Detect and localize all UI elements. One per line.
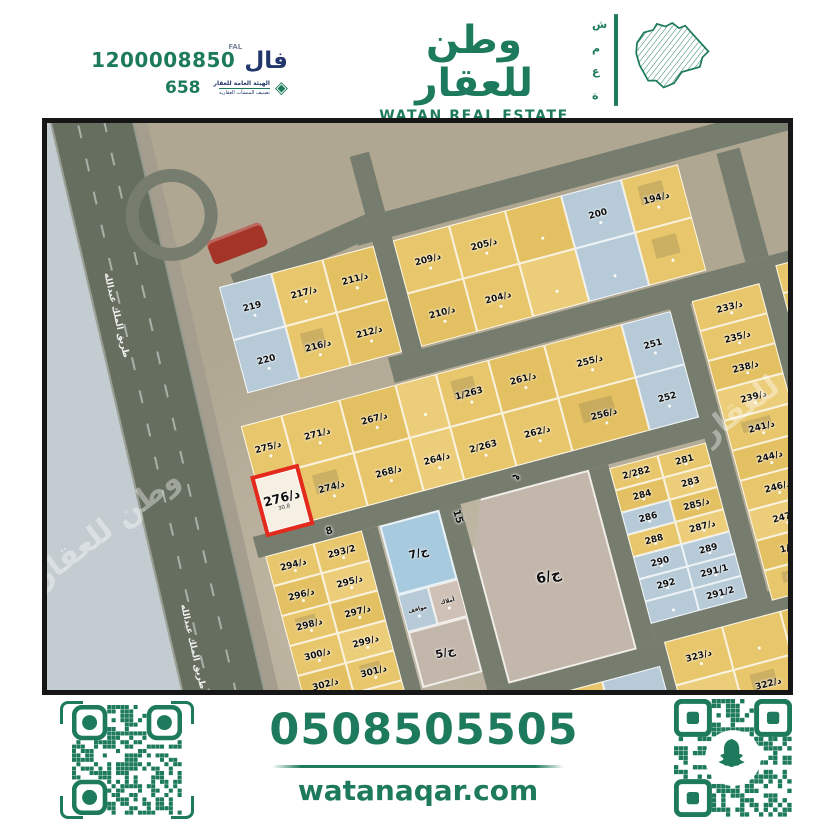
divider-line bbox=[272, 765, 564, 768]
parcel-dot bbox=[598, 221, 602, 225]
parcel-dot bbox=[540, 236, 544, 240]
plot-label: د/271 bbox=[303, 426, 331, 443]
road bbox=[716, 148, 768, 262]
parcel-dot bbox=[499, 304, 503, 308]
plot-label: د/204 bbox=[484, 289, 512, 306]
plot-label: 2/248 bbox=[787, 568, 793, 585]
parcel-dot bbox=[269, 454, 273, 458]
plot-label: د/287 bbox=[688, 518, 716, 535]
side-brand-letters: شمعة bbox=[592, 12, 607, 108]
map-frame: طريق الملك عبدالله طريق الملك عبدالله ج/… bbox=[42, 118, 793, 695]
plot-label: د/267 bbox=[360, 411, 388, 428]
parcel-dot bbox=[654, 351, 658, 355]
contact-block: 0508505505 watanaqar.com bbox=[262, 705, 574, 807]
plot-label: د/256 bbox=[590, 406, 618, 423]
plot-label: د/216 bbox=[304, 338, 332, 355]
plot-label: د/209 bbox=[414, 251, 442, 268]
plot-label: 292 bbox=[656, 577, 677, 592]
parcel-dot bbox=[332, 494, 336, 498]
lot-label: ج/7 bbox=[407, 544, 429, 562]
parcel-dot bbox=[484, 251, 488, 255]
parcel-dot bbox=[375, 426, 379, 430]
parcel-dot bbox=[671, 609, 675, 613]
plot-label: 251 bbox=[643, 337, 664, 352]
authority-name: الهيئة العامة للعقار bbox=[214, 80, 270, 87]
plot-label: د/268 bbox=[374, 464, 402, 481]
plot-label: د/262 bbox=[523, 424, 551, 441]
website-link[interactable]: watanaqar.com bbox=[262, 774, 574, 807]
qr-code-left[interactable] bbox=[54, 701, 200, 819]
plot-label: 286 bbox=[638, 510, 659, 525]
plot-label: 2/263 bbox=[468, 438, 498, 455]
footer: 0508505505 watanaqar.com bbox=[0, 695, 835, 825]
logo-divider-bar bbox=[614, 14, 618, 106]
parcel-dot bbox=[418, 614, 422, 618]
parcel-dot bbox=[613, 274, 617, 278]
plot-label: د/274 bbox=[317, 479, 345, 496]
plot-cell: د/174 bbox=[790, 302, 793, 349]
lot-label: ج/5 bbox=[434, 643, 456, 661]
parcel-dot bbox=[657, 205, 661, 209]
brand-logo: وطن للعقار WATAN REAL ESTATE bbox=[368, 20, 580, 124]
plot-label: 219 bbox=[242, 299, 263, 314]
plot-cell: د/316 bbox=[792, 639, 793, 695]
plot-label: د/285 bbox=[682, 496, 710, 513]
parcel-dot bbox=[484, 453, 488, 457]
header: 1200008850 FALفال 658 الهيئة العامة للعق… bbox=[0, 0, 835, 118]
plot-label: د/322 bbox=[754, 676, 782, 693]
brand-letter: ة bbox=[592, 89, 607, 102]
plot-label: 1/248 bbox=[779, 538, 793, 555]
saudi-map-icon bbox=[625, 12, 711, 108]
saudi-map-logo: شمعة bbox=[592, 12, 711, 108]
plot-label: 283 bbox=[680, 475, 701, 490]
plot-label: د/210 bbox=[428, 304, 456, 321]
authority-diamond-icon: ◈ bbox=[275, 80, 288, 97]
parcel-dot bbox=[604, 421, 608, 425]
plot-label: 220 bbox=[256, 353, 277, 368]
plot-label: 284 bbox=[632, 488, 653, 503]
plot-label: 252 bbox=[657, 390, 678, 405]
phone-number[interactable]: 0508505505 bbox=[269, 705, 578, 755]
plot-label: أملاك bbox=[440, 597, 456, 607]
plot-label: 291/1 bbox=[699, 563, 729, 580]
plot-label: د/212 bbox=[355, 324, 383, 341]
parcel-dot bbox=[769, 689, 773, 693]
parcel-dot bbox=[443, 319, 447, 323]
classification-number: 658 bbox=[165, 78, 201, 98]
plot-label: د/261 bbox=[509, 371, 537, 388]
plot-label: د/205 bbox=[470, 236, 498, 253]
plot-label: 200 bbox=[588, 207, 609, 222]
parcel-dot bbox=[469, 400, 473, 404]
parcel-dot bbox=[699, 661, 703, 665]
parcel-dot bbox=[319, 353, 323, 357]
parcel-dot bbox=[267, 367, 271, 371]
plot-label: 1/263 bbox=[454, 385, 484, 402]
parcel-dot bbox=[318, 441, 322, 445]
parcel-dot bbox=[668, 404, 672, 408]
lot-label: ج/6 bbox=[535, 566, 563, 588]
fal-logo: FALفال bbox=[244, 46, 288, 73]
parcel-map: طريق الملك عبدالله طريق الملك عبدالله ج/… bbox=[42, 118, 793, 695]
plot-label: د/255 bbox=[576, 353, 604, 370]
parcel-dot bbox=[389, 479, 393, 483]
plot-label: د/264 bbox=[423, 451, 451, 468]
parcel-dot bbox=[304, 300, 308, 304]
parcel-dot bbox=[757, 646, 761, 650]
parcel-dot bbox=[590, 368, 594, 372]
parcel-dot bbox=[437, 466, 441, 470]
brand-letter: ع bbox=[592, 65, 607, 78]
parcel-dot bbox=[524, 386, 528, 390]
parcel-dot bbox=[370, 339, 374, 343]
flyer-page: 1200008850 FALفال 658 الهيئة العامة للعق… bbox=[0, 0, 835, 825]
brand-letter: ش bbox=[592, 18, 607, 31]
parcel-dot bbox=[428, 266, 432, 270]
plot-label: د/211 bbox=[341, 271, 369, 288]
license-block: 1200008850 FALفال 658 الهيئة العامة للعق… bbox=[88, 46, 288, 98]
plot-label: د/323 bbox=[685, 648, 713, 665]
plot-label: د/217 bbox=[290, 285, 318, 302]
plot-label: 281 bbox=[674, 453, 695, 468]
brand-name-arabic: وطن للعقار bbox=[368, 20, 580, 106]
parcel-dot bbox=[356, 286, 360, 290]
parcel-dot bbox=[448, 606, 452, 610]
plot-label: د/194 bbox=[642, 190, 670, 207]
parcel-dot bbox=[555, 289, 559, 293]
parcel-dot bbox=[538, 439, 542, 443]
authority-logo: الهيئة العامة للعقار تصنيف المنشآت العقا… bbox=[214, 80, 288, 97]
plot-label: 288 bbox=[644, 532, 665, 547]
brand-letter: م bbox=[592, 42, 607, 55]
parcel-dot bbox=[423, 413, 427, 417]
parcel-dot bbox=[253, 313, 257, 317]
plot-label: 290 bbox=[650, 555, 671, 570]
plot-label: 2/282 bbox=[621, 464, 651, 481]
plot-label: د/247 bbox=[772, 508, 793, 525]
qr-code-right[interactable] bbox=[668, 697, 798, 815]
plot-label: د/302 bbox=[311, 676, 339, 693]
plot-label: د/275 bbox=[254, 439, 282, 456]
plot-label: 289 bbox=[698, 542, 719, 557]
authority-subtitle: تصنيف المنشآت العقارية bbox=[219, 88, 270, 96]
plot-label: 291/2 bbox=[705, 585, 735, 602]
plot-label: مواقف bbox=[408, 604, 428, 615]
parcel-dot bbox=[671, 258, 675, 262]
fal-license-number: 1200008850 bbox=[91, 48, 235, 72]
